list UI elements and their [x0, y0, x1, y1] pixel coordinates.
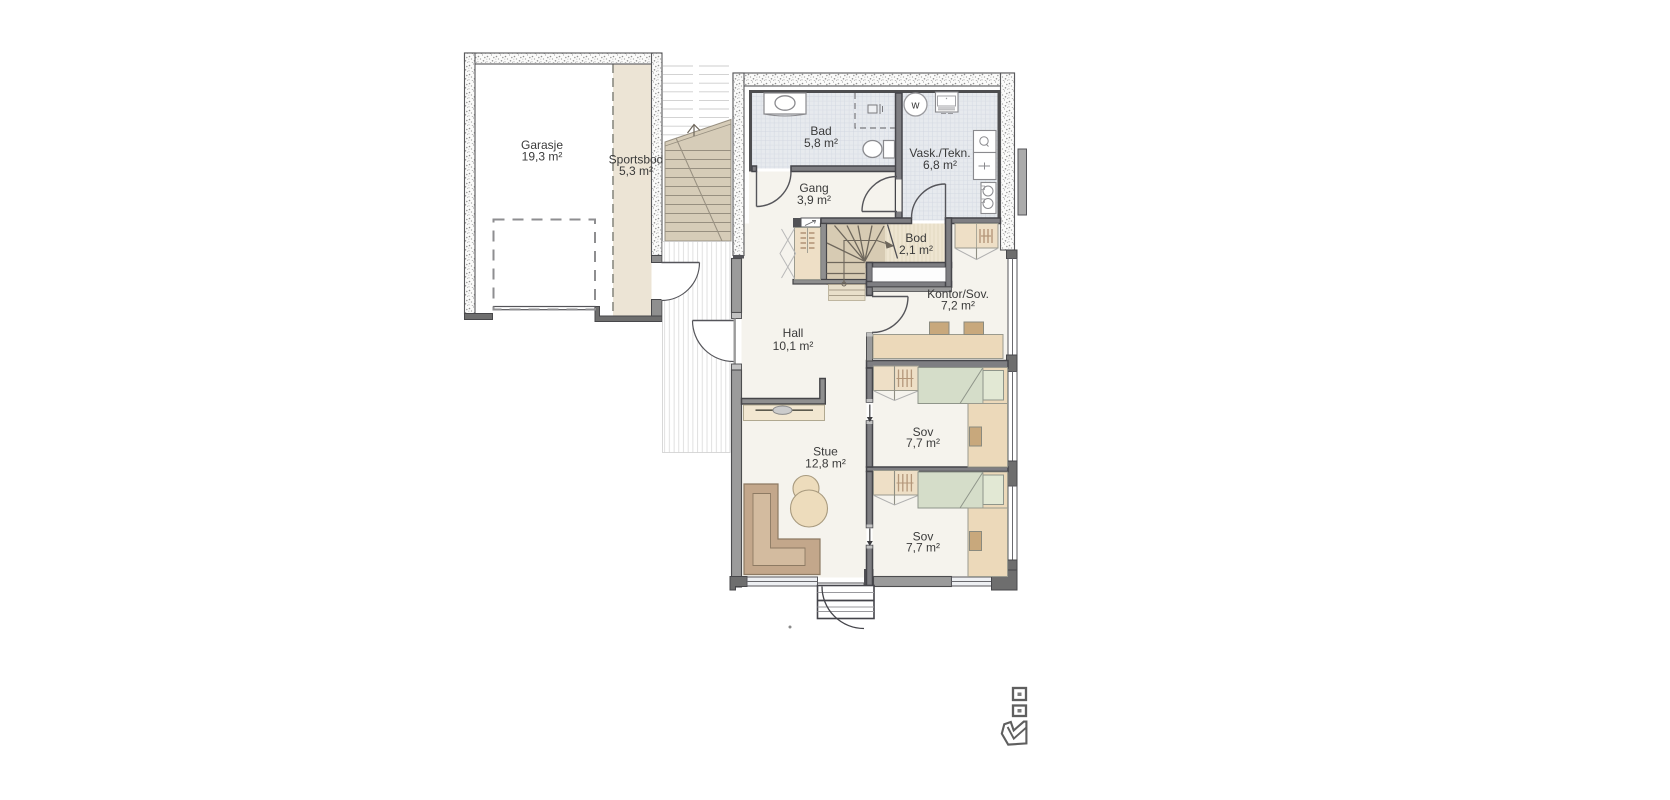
- svg-text:5,3 m²: 5,3 m²: [619, 164, 653, 178]
- svg-text:Hall: Hall: [783, 326, 804, 340]
- svg-text:10,1 m²: 10,1 m²: [773, 339, 814, 353]
- svg-text:w: w: [911, 100, 920, 112]
- svg-text:7,7 m²: 7,7 m²: [906, 436, 940, 450]
- svg-text:3,9 m²: 3,9 m²: [797, 193, 831, 207]
- svg-text:6,8 m²: 6,8 m²: [923, 158, 957, 172]
- svg-text:7,2 m²: 7,2 m²: [941, 299, 975, 313]
- svg-text:12,8 m²: 12,8 m²: [805, 457, 846, 471]
- svg-text:7,7 m²: 7,7 m²: [906, 541, 940, 555]
- svg-text:2,1 m²: 2,1 m²: [899, 243, 933, 257]
- svg-text:19,3 m²: 19,3 m²: [522, 150, 563, 164]
- svg-text:5,8 m²: 5,8 m²: [804, 136, 838, 150]
